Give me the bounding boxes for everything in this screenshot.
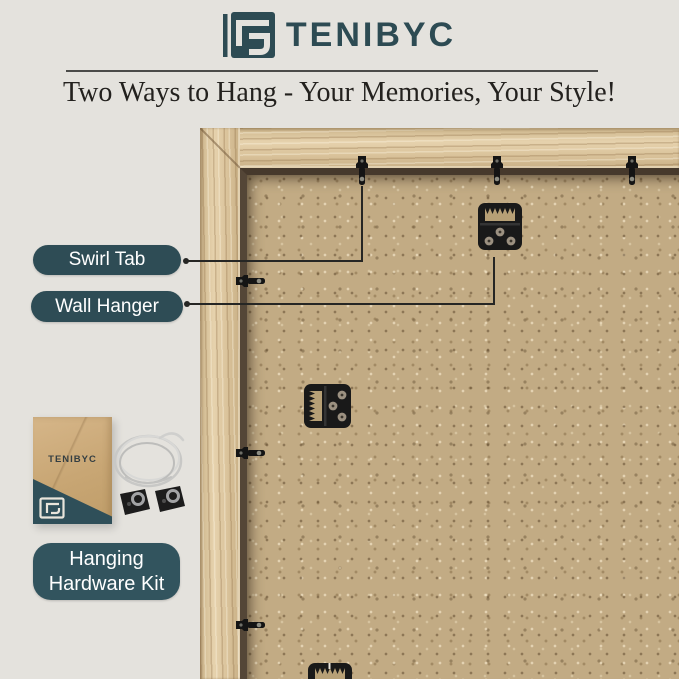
kit-envelope-brand-text: TENIBYC	[33, 454, 112, 465]
wall-hanger-leader-line	[187, 303, 495, 305]
frame-wood-left-rail	[200, 128, 240, 679]
brand-logo: TENIBYC	[0, 12, 679, 59]
swirl-tab-icon	[236, 446, 268, 460]
product-infographic: TENIBYC Two Ways to Hang - Your Memories…	[0, 0, 679, 679]
swirl-tab-leader-line	[186, 260, 363, 262]
d-ring-clip-icon	[116, 487, 152, 517]
wall-hanger-callout-label: Wall Hanger	[55, 296, 159, 318]
swirl-tab-callout: Swirl Tab	[33, 245, 181, 275]
brand-frame-icon	[39, 497, 65, 519]
wall-hanger-icon	[303, 383, 353, 429]
kit-label-line1: Hanging	[69, 547, 144, 572]
swirl-tab-icon	[625, 156, 639, 188]
swirl-tab-icon	[490, 156, 504, 188]
swirl-tab-leader-line	[361, 186, 363, 262]
frame-wood-top-rail	[200, 128, 679, 168]
kit-label-line2: Hardware Kit	[49, 572, 165, 597]
divider-rule	[66, 70, 598, 72]
wall-hanger-leader-line	[493, 257, 495, 305]
frame-back-photo	[200, 128, 679, 679]
swirl-tab-icon	[236, 274, 268, 288]
wall-hanger-icon	[307, 662, 353, 679]
wall-hanger-callout: Wall Hanger	[31, 291, 183, 322]
swirl-tab-callout-label: Swirl Tab	[69, 249, 146, 271]
brand-logo-text: TENIBYC	[286, 16, 456, 55]
swirl-tab-icon	[236, 618, 268, 632]
wall-hanger-icon	[477, 202, 523, 252]
swirl-tab-icon	[355, 156, 369, 188]
hanging-wire-icon	[108, 421, 188, 493]
kit-envelope: TENIBYC	[33, 417, 112, 524]
brand-frame-icon	[223, 12, 275, 59]
tagline: Two Ways to Hang - Your Memories, Your S…	[0, 77, 679, 109]
hanging-hardware-kit-label: Hanging Hardware Kit	[33, 543, 180, 600]
d-ring-clip-icon	[151, 484, 187, 514]
